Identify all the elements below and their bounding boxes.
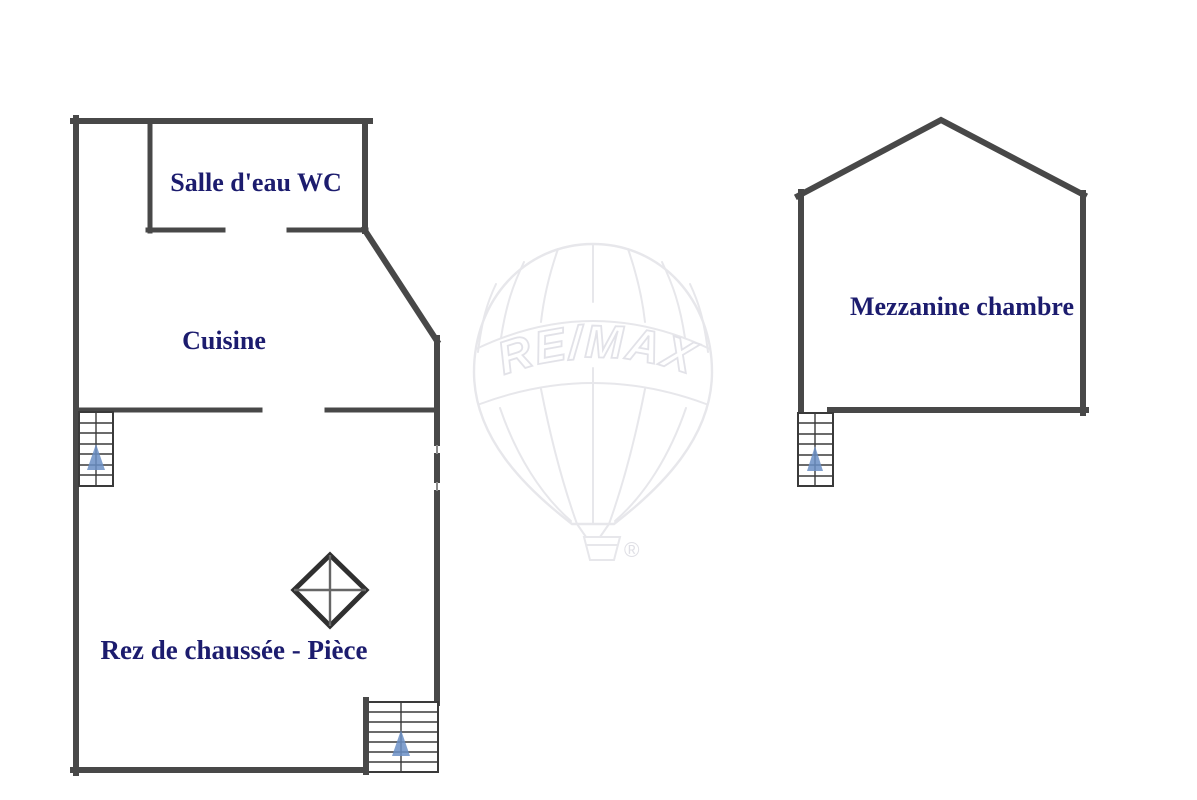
watermark-brand-textpath: RE/MAX: [491, 315, 703, 384]
diamond-column-symbol: [294, 555, 366, 626]
remax-balloon-watermark-icon: RE/MAX ®: [474, 244, 712, 562]
watermark-brand-text: RE/MAX: [491, 315, 703, 384]
floorplan-image: RE/MAX ®: [0, 0, 1197, 800]
ground-floor-outer-wall-diagonal: [364, 229, 437, 341]
balloon-basket: [577, 524, 620, 560]
room-label-cuisine: Cuisine: [182, 326, 266, 355]
staircase-ground-floor-bottom: [365, 700, 438, 772]
ground-floor-plan: Salle d'eau WC Cuisine Rez de chaussée -…: [73, 118, 438, 773]
room-label-rez-de-chaussee: Rez de chaussée - Pièce: [101, 635, 368, 665]
mezzanine-floor-plan: Mezzanine chambre: [798, 120, 1086, 486]
room-label-mezzanine-chambre: Mezzanine chambre: [850, 292, 1074, 321]
registered-trademark-icon: ®: [624, 539, 640, 562]
room-label-salle-deau-wc: Salle d'eau WC: [170, 168, 341, 197]
staircase-mezzanine: [798, 413, 833, 486]
diamond-cross-lines: [294, 555, 366, 626]
staircase-ground-floor-left: [79, 412, 113, 486]
floorplan-svg: RE/MAX ®: [0, 0, 1197, 800]
balloon-gores-bottom: [500, 368, 686, 524]
mezzanine-roof: [798, 120, 1084, 196]
